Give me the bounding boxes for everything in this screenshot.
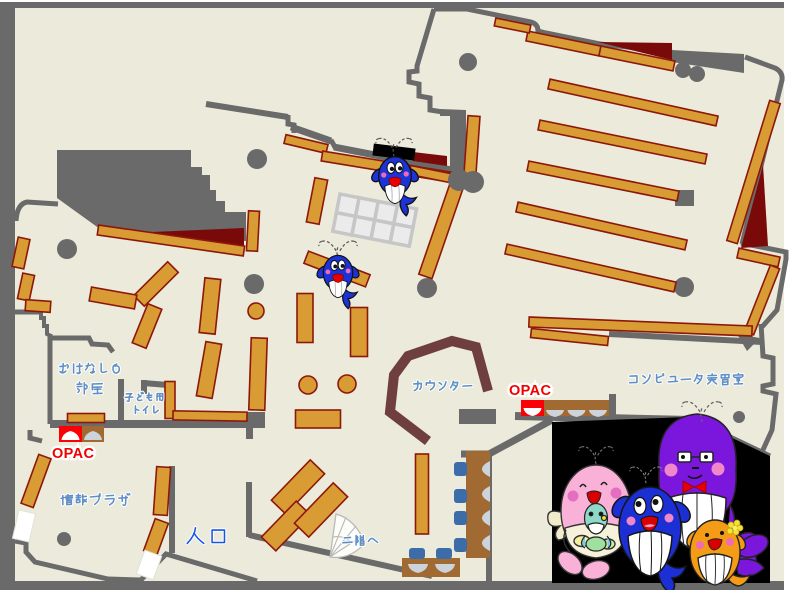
svg-text:OPAC: OPAC	[52, 446, 95, 462]
svg-text:OPAC: OPAC	[509, 383, 552, 399]
